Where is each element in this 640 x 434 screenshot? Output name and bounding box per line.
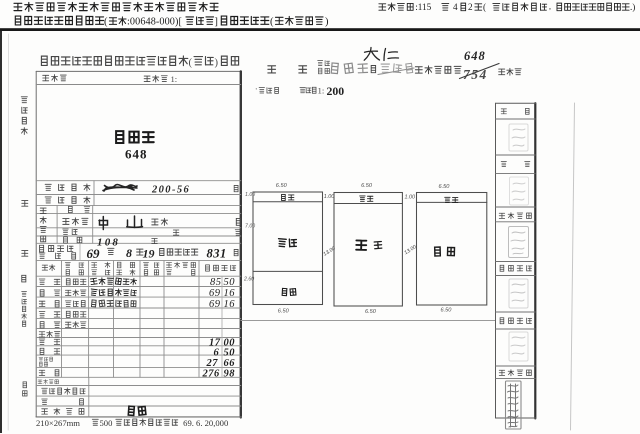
svg-text:]: ] — [215, 16, 218, 27]
svg-text::00648-000)[: :00648-000)[ — [127, 16, 182, 27]
svg-text:50: 50 — [224, 347, 236, 358]
svg-text:6.50: 6.50 — [441, 308, 453, 314]
svg-text:27: 27 — [206, 358, 219, 369]
svg-text:8: 8 — [126, 246, 132, 260]
svg-text:210×267mm: 210×267mm — [36, 418, 80, 428]
svg-text:2: 2 — [468, 2, 473, 12]
svg-text:50: 50 — [224, 277, 236, 288]
svg-text:(: ( — [483, 2, 486, 12]
svg-text:(: ( — [189, 58, 193, 69]
svg-text:66: 66 — [224, 358, 236, 369]
svg-text:16: 16 — [224, 288, 236, 299]
svg-text:831: 831 — [207, 247, 227, 261]
svg-text:(: ( — [104, 16, 108, 27]
svg-text:): ) — [325, 16, 329, 27]
svg-text:69: 69 — [209, 299, 221, 310]
svg-text:69. 6. 20,000: 69. 6. 20,000 — [181, 418, 228, 428]
svg-text:2.60: 2.60 — [243, 277, 254, 283]
svg-text:6: 6 — [214, 347, 220, 358]
svg-text:69: 69 — [209, 288, 221, 299]
svg-text:69: 69 — [87, 246, 101, 261]
svg-text:6.50: 6.50 — [365, 309, 377, 315]
svg-text:(: ( — [270, 16, 274, 27]
svg-text:648: 648 — [125, 147, 148, 162]
svg-text:6.50: 6.50 — [361, 183, 373, 189]
svg-text:.): .) — [630, 2, 635, 12]
svg-text:6.50: 6.50 — [276, 183, 288, 189]
svg-text:200-56: 200-56 — [151, 185, 190, 196]
svg-text:98: 98 — [224, 369, 236, 380]
svg-text:200: 200 — [327, 84, 345, 98]
svg-text:276: 276 — [202, 369, 221, 380]
svg-text:1.00: 1.00 — [324, 194, 335, 200]
svg-text:16: 16 — [224, 299, 236, 310]
svg-text:7.00: 7.00 — [245, 224, 255, 230]
svg-text:1:: 1: — [171, 74, 178, 84]
svg-text:6.50: 6.50 — [278, 308, 290, 314]
svg-text:19: 19 — [143, 247, 155, 261]
svg-text:648: 648 — [464, 49, 486, 63]
svg-text:85: 85 — [210, 277, 222, 288]
svg-text:4: 4 — [453, 2, 458, 12]
svg-text:1:: 1: — [318, 86, 325, 96]
svg-text:': ' — [256, 88, 257, 95]
svg-text:108: 108 — [97, 237, 120, 249]
svg-text:1.00: 1.00 — [405, 195, 416, 201]
svg-text:,: , — [549, 2, 551, 11]
svg-text::115: :115 — [415, 2, 431, 12]
svg-text:1.00: 1.00 — [245, 192, 255, 198]
svg-text:): ) — [215, 58, 219, 69]
svg-text:6.50: 6.50 — [439, 184, 451, 190]
svg-text:500: 500 — [100, 418, 113, 428]
